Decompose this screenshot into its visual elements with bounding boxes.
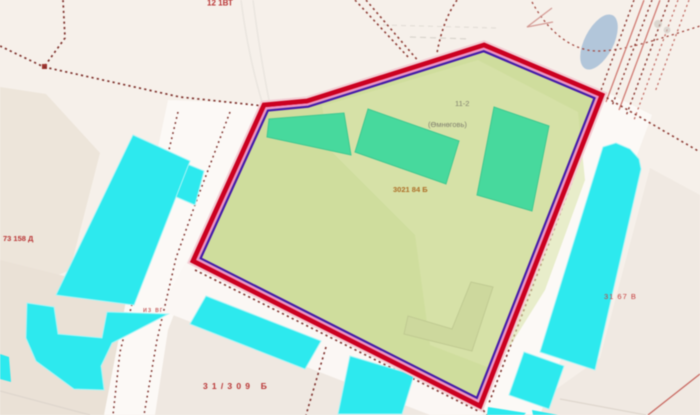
svg-text:из вг: из вг	[143, 307, 163, 314]
svg-text:12 1ВТ: 12 1ВТ	[207, 0, 233, 8]
svg-text:(Өмнөговь): (Өмнөговь)	[428, 120, 467, 129]
svg-text:31 67 В: 31 67 В	[604, 292, 637, 301]
svg-text:73 158 Д: 73 158 Д	[3, 234, 34, 243]
svg-text:3021 84 Б: 3021 84 Б	[393, 185, 428, 194]
svg-text:11-2: 11-2	[455, 99, 469, 108]
svg-text:31/309 Б: 31/309 Б	[203, 381, 271, 391]
